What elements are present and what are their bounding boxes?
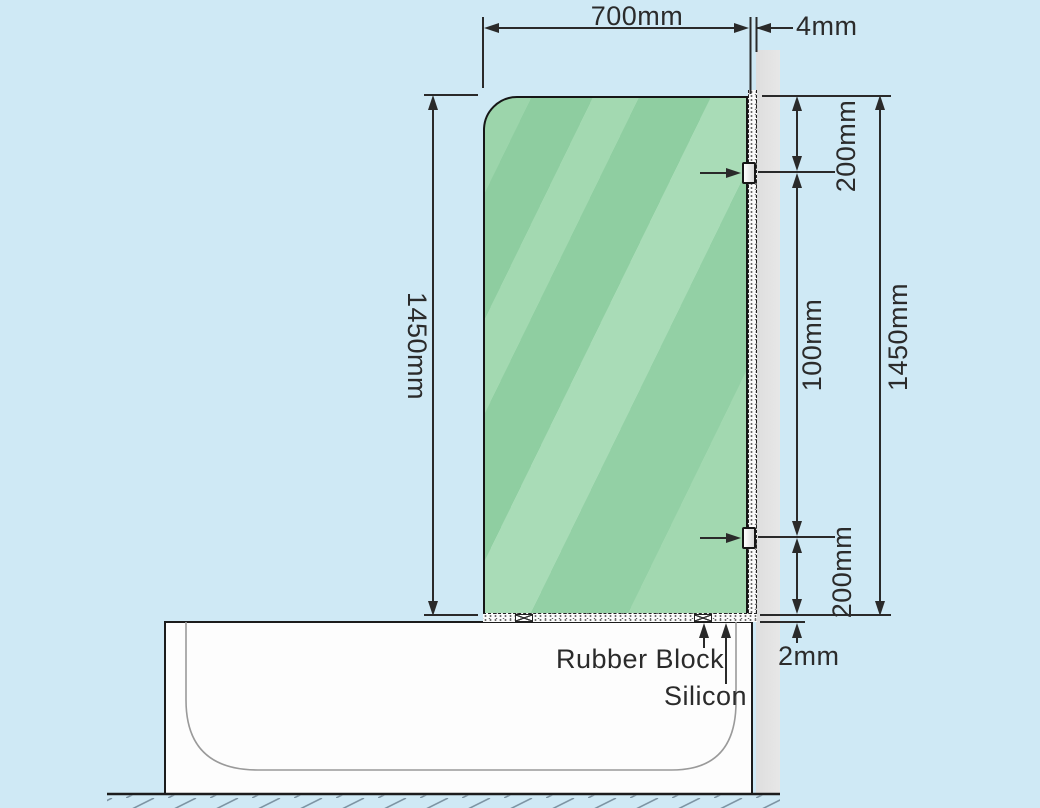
dim-label-bracket-bottom-offset: 200mm [828, 502, 856, 642]
wall-bracket-bottom [742, 527, 756, 549]
dim-bracket-bottom-lines [792, 538, 802, 614]
rubber-block-right [694, 614, 712, 622]
floor [107, 794, 780, 808]
dim-label-wall-gap: 4mm [796, 11, 858, 42]
annotation-silicon: Silicon [664, 681, 746, 712]
dim-base-gap-lines [792, 623, 802, 643]
dim-label-glass-width: 700mm [537, 1, 737, 32]
glass-panel [483, 96, 748, 615]
dim-label-base-gap: 2mm [778, 641, 840, 672]
dim-bracket-top-lines [792, 96, 802, 171]
wall [756, 50, 780, 794]
dim-label-bracket-spacing: 100mm [798, 275, 826, 415]
diagram-canvas: 700mm 4mm 1450mm 200mm 100mm 1450mm 200m… [0, 0, 1040, 808]
dim-height-left-lines [424, 95, 478, 616]
wall-bracket-top [742, 162, 756, 184]
rubber-block-left [515, 614, 533, 622]
dim-label-height-right: 1450mm [884, 267, 912, 407]
annotation-rubber-block: Rubber Block [556, 644, 718, 675]
floor-hatch [107, 796, 780, 808]
dim-label-height-left: 1450mm [403, 276, 431, 416]
dim-label-bracket-top-offset: 200mm [832, 76, 860, 216]
